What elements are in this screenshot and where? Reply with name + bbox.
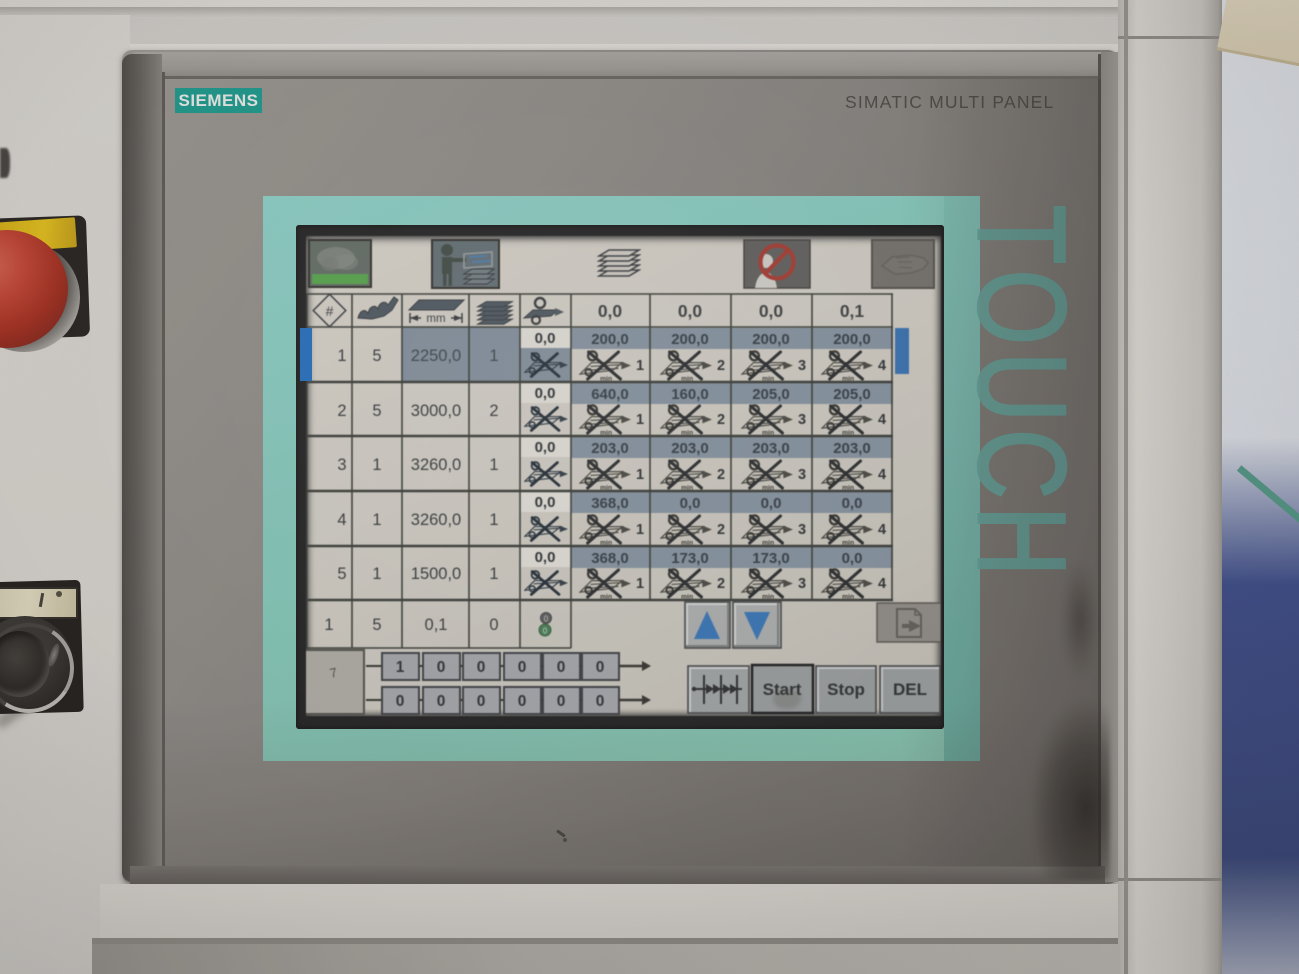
svg-text:3: 3 <box>798 412 806 428</box>
svg-text:160,0: 160,0 <box>671 386 709 403</box>
svg-text:1: 1 <box>489 456 498 474</box>
svg-text:2: 2 <box>717 412 725 428</box>
svg-text:2: 2 <box>717 358 725 374</box>
svg-text:3: 3 <box>798 522 806 538</box>
svg-text:200,0: 200,0 <box>591 331 629 348</box>
svg-text:3: 3 <box>798 576 806 592</box>
svg-text:1: 1 <box>636 576 644 592</box>
svg-text:0,0: 0,0 <box>842 550 863 567</box>
svg-text:2: 2 <box>337 402 346 420</box>
svg-text:5: 5 <box>372 347 381 365</box>
svg-text:0: 0 <box>437 659 446 676</box>
svg-text:368,0: 368,0 <box>591 550 629 567</box>
svg-text:1: 1 <box>396 659 405 676</box>
svg-text:2250,0: 2250,0 <box>411 347 461 365</box>
svg-text:0: 0 <box>437 693 446 710</box>
svg-text:1: 1 <box>372 456 381 474</box>
svg-text:4: 4 <box>878 412 886 428</box>
svg-text:4: 4 <box>878 358 886 374</box>
svg-text:mm: mm <box>426 313 445 325</box>
svg-text:0: 0 <box>557 659 566 676</box>
svg-text:0,0: 0,0 <box>598 301 623 321</box>
svg-text:203,0: 203,0 <box>833 440 871 457</box>
svg-text:1: 1 <box>372 511 381 529</box>
svg-text:4: 4 <box>878 467 886 483</box>
svg-text:203,0: 203,0 <box>591 440 629 457</box>
svg-text:1: 1 <box>636 412 644 428</box>
svg-text:0,0: 0,0 <box>680 495 701 512</box>
svg-text:3: 3 <box>337 456 346 474</box>
svg-text:0: 0 <box>596 693 605 710</box>
svg-text:5: 5 <box>372 616 381 634</box>
svg-text:3: 3 <box>798 358 806 374</box>
svg-text:3: 3 <box>798 467 806 483</box>
svg-text:173,0: 173,0 <box>752 550 790 567</box>
svg-text:0,0: 0,0 <box>678 301 703 321</box>
svg-text:1: 1 <box>636 358 644 374</box>
svg-text:3260,0: 3260,0 <box>411 456 461 474</box>
svg-text:640,0: 640,0 <box>591 386 629 403</box>
svg-text:0,0: 0,0 <box>759 301 784 321</box>
svg-text:0: 0 <box>544 615 549 624</box>
svg-text:3260,0: 3260,0 <box>411 511 461 529</box>
svg-text:1: 1 <box>489 347 498 365</box>
svg-text:203,0: 203,0 <box>671 440 709 457</box>
svg-text:0: 0 <box>396 693 405 710</box>
svg-text:0: 0 <box>477 693 486 710</box>
svg-text:2: 2 <box>489 402 498 420</box>
svg-text:#: # <box>326 303 334 319</box>
svg-text:1500,0: 1500,0 <box>411 565 461 583</box>
svg-text:0,0: 0,0 <box>842 495 863 512</box>
svg-text:0: 0 <box>596 659 605 676</box>
svg-text:0: 0 <box>489 616 498 634</box>
svg-text:5: 5 <box>372 402 381 420</box>
svg-text:173,0: 173,0 <box>671 550 709 567</box>
svg-text:0: 0 <box>518 659 527 676</box>
svg-text:2: 2 <box>717 522 725 538</box>
svg-text:1: 1 <box>372 565 381 583</box>
svg-text:4: 4 <box>878 522 886 538</box>
svg-text:205,0: 205,0 <box>752 386 790 403</box>
svg-text:3000,0: 3000,0 <box>411 402 461 420</box>
svg-text:0: 0 <box>518 693 527 710</box>
svg-text:5: 5 <box>337 565 346 583</box>
svg-text:0,0: 0,0 <box>535 439 556 456</box>
svg-text:0,0: 0,0 <box>761 495 782 512</box>
svg-text:1: 1 <box>489 511 498 529</box>
svg-text:1: 1 <box>324 616 333 634</box>
svg-text:0,0: 0,0 <box>535 330 556 347</box>
svg-text:0,0: 0,0 <box>535 385 556 402</box>
svg-text:Stop: Stop <box>827 680 865 699</box>
svg-text:0: 0 <box>477 659 486 676</box>
svg-text:0: 0 <box>557 693 566 710</box>
svg-text:0,1: 0,1 <box>840 301 865 321</box>
svg-text:1: 1 <box>489 565 498 583</box>
svg-text:1: 1 <box>337 347 346 365</box>
svg-text:200,0: 200,0 <box>671 331 709 348</box>
svg-text:4: 4 <box>337 511 346 529</box>
svg-text:0,1: 0,1 <box>425 616 448 634</box>
svg-text:DEL: DEL <box>893 680 927 699</box>
svg-text:0: 0 <box>543 627 548 636</box>
svg-text:200,0: 200,0 <box>833 331 871 348</box>
svg-text:1: 1 <box>636 467 644 483</box>
svg-text:2: 2 <box>717 467 725 483</box>
svg-text:205,0: 205,0 <box>833 386 871 403</box>
svg-text:0,0: 0,0 <box>535 494 556 511</box>
svg-text:200,0: 200,0 <box>752 331 790 348</box>
svg-text:1: 1 <box>636 522 644 538</box>
svg-text:4: 4 <box>878 576 886 592</box>
svg-text:0,0: 0,0 <box>535 549 556 566</box>
svg-text:203,0: 203,0 <box>752 440 790 457</box>
svg-text:2: 2 <box>717 576 725 592</box>
svg-text:368,0: 368,0 <box>591 495 629 512</box>
